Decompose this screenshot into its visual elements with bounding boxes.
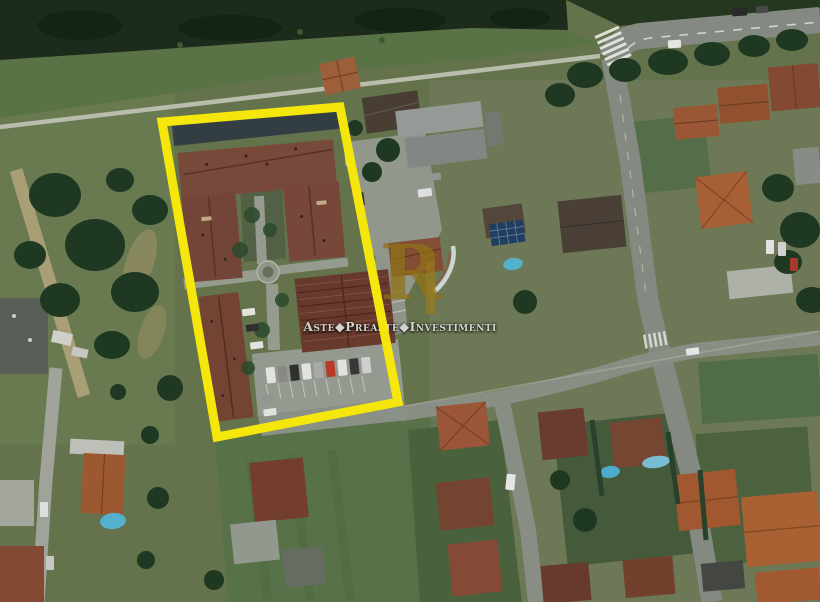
- property-highlight-outline: [162, 107, 398, 437]
- highlight-overlay: [0, 0, 820, 602]
- satellite-photo: R Aste◆Preaste◆Investimenti: [0, 0, 820, 602]
